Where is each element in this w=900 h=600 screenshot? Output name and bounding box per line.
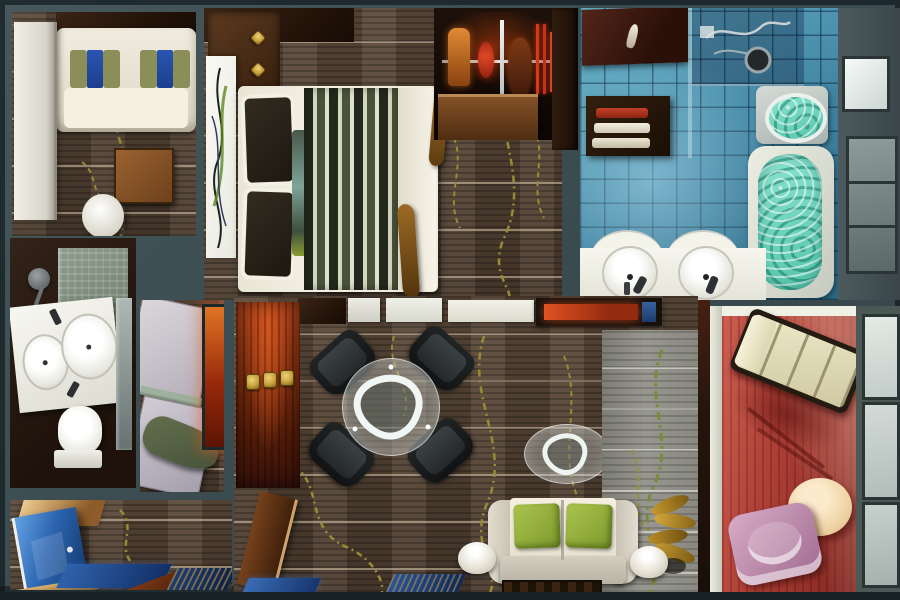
toilet-tank [54, 450, 102, 468]
glass-coffee-table [524, 424, 610, 484]
bathtub-water [758, 154, 822, 290]
room-sitting [12, 12, 196, 236]
towel-red [596, 108, 648, 118]
mullion [849, 181, 895, 184]
toilet [44, 406, 108, 470]
mirror-strip [116, 298, 132, 450]
wall-artwork [206, 56, 236, 258]
chrome-pole [500, 20, 504, 100]
window-panel [846, 136, 898, 274]
room-dressing [140, 300, 224, 492]
brass-knob [250, 62, 267, 79]
brass-knob [250, 30, 267, 47]
table-ring-decor [525, 425, 609, 483]
wardrobe-panel [14, 22, 57, 220]
bathroom-door-dark [552, 8, 578, 150]
bed-pillow [245, 191, 294, 277]
blue-floor-niche [243, 578, 321, 592]
green-cushion [565, 503, 613, 549]
sofa-pillow-left-olive [70, 50, 87, 88]
seat-split [561, 500, 564, 560]
glass-dining-table [342, 358, 440, 456]
console-table-rug [502, 580, 602, 592]
table-ring-decor [343, 359, 439, 455]
console-red-glow [544, 304, 638, 320]
drain [86, 344, 91, 349]
floorplan-canvas [0, 0, 900, 600]
open-door-leaf [237, 491, 298, 592]
red-wood-floor [722, 316, 856, 592]
backlit-red-panel [202, 304, 224, 450]
room-entry [10, 500, 232, 590]
glass-partition [688, 8, 692, 158]
desk-top [448, 300, 534, 322]
media-console [536, 298, 662, 326]
sofa-pillow-right-olive2 [173, 50, 190, 88]
brass-handle [280, 370, 294, 386]
bamboo-mat [167, 568, 232, 590]
green-cushion [513, 503, 561, 549]
white-floor-strip [710, 306, 722, 592]
cabinet-top [348, 298, 380, 322]
shower-fixtures [692, 8, 804, 84]
dresser [438, 94, 538, 140]
sculpture [625, 23, 640, 48]
toilet-bowl [58, 406, 102, 454]
sofa-pillow-right-blue [157, 50, 173, 88]
sofa [56, 28, 196, 132]
room-closet [434, 8, 560, 140]
dark-pillar [698, 300, 710, 592]
drain [703, 274, 709, 280]
room-living [234, 296, 698, 592]
window-pane [862, 314, 900, 400]
jacuzzi-water [765, 93, 827, 143]
jacuzzi-deck [756, 86, 828, 144]
bed-pillow [245, 97, 294, 183]
outer-wall-windows [838, 8, 900, 300]
window-pane [862, 402, 900, 500]
hanging-bar [536, 24, 539, 94]
room-main-bathroom [580, 8, 838, 300]
sofa-pillow-left-olive2 [103, 50, 120, 88]
brass-handle [263, 372, 277, 388]
vanity [580, 230, 766, 300]
brass-handle [246, 374, 260, 390]
terrace-window-wall [856, 306, 900, 592]
hanging-red-garment [478, 42, 494, 78]
window-pane [862, 502, 900, 588]
blue-floor-niche [386, 574, 466, 592]
dome-lamp [458, 542, 496, 574]
soap-bottle [624, 282, 630, 295]
artwork-abstract [206, 56, 236, 258]
towel-cream [594, 123, 650, 133]
wall-cabinet-strip [298, 298, 346, 324]
hanging-robe [448, 28, 470, 86]
cello-shape [508, 38, 532, 98]
room-terrace [710, 306, 900, 592]
red-wardrobe [236, 302, 300, 488]
cabinet-top [386, 298, 442, 322]
dark-nook [582, 8, 688, 66]
striped-runner [304, 88, 398, 290]
console-blue-edge [642, 302, 656, 322]
window-pane [842, 56, 890, 112]
towel-shelf [586, 96, 670, 156]
mullion [849, 225, 895, 228]
towel-cream [592, 138, 650, 148]
faucet [66, 381, 80, 398]
shower-area [692, 8, 804, 86]
drain [42, 360, 47, 365]
vanity [10, 297, 123, 413]
sink-basin [602, 246, 658, 300]
sofa [488, 492, 638, 586]
coffee-table [114, 148, 174, 204]
faucet [49, 308, 62, 325]
plant-leaf [653, 511, 697, 531]
sofa-pillow-right-olive [140, 50, 157, 88]
room-guest-bathroom [10, 238, 136, 488]
sofa-pillow-left-blue [87, 50, 103, 88]
bottom-wall [0, 592, 900, 600]
sofa-seat [64, 88, 188, 128]
stool [82, 194, 124, 236]
dome-lamp [630, 546, 668, 578]
drain [627, 274, 633, 280]
hanging-bar [543, 24, 546, 94]
door-handle [66, 546, 73, 553]
pink-chair-seat [744, 517, 806, 569]
